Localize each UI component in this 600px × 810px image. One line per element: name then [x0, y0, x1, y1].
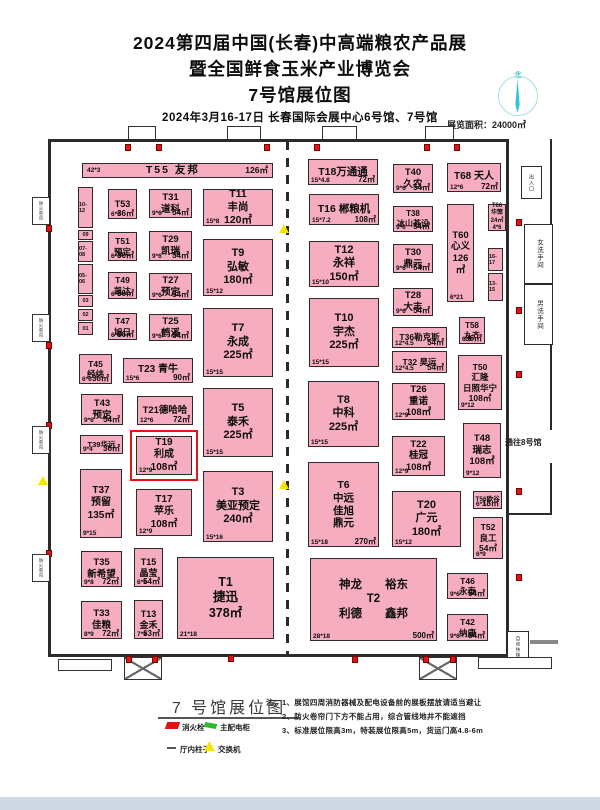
booth-T25: T25鹤溪9*654㎡ — [149, 314, 192, 341]
booth-T21: T21德哈哈12*672㎡ — [137, 396, 193, 425]
fire-hydrant-marker — [423, 656, 429, 663]
fire-shutter-door-label: 防火卷帘 — [38, 318, 44, 338]
booth-T49: T49凯达6*636㎡ — [108, 272, 137, 299]
booth-T13: T13金禾7*963㎡ — [134, 600, 163, 639]
fire-hydrant-marker — [516, 307, 522, 314]
booth-T68: T68 天人12*672㎡ — [447, 163, 501, 192]
booth-T7: T7永成225㎡15*15 — [203, 308, 273, 377]
escalator-label: 自动扶梯 — [515, 636, 521, 658]
fire-shutter-door-label: 防火卷帘 — [38, 558, 44, 578]
legend-switch-label: 交换机 — [218, 744, 241, 755]
left-strip-cell-03: 03 — [78, 295, 93, 307]
fire-hydrant-marker — [46, 225, 52, 232]
booth-T22: T22桂冠108㎡12*9 — [392, 436, 445, 476]
booth-T37: T37预留135㎡9*15 — [80, 469, 122, 538]
booth-T18: T18万通通15*4.872㎡ — [308, 159, 378, 185]
fire-hydrant-marker — [228, 655, 234, 662]
booth-T11: T11丰尚120㎡15*8 — [203, 189, 273, 226]
wall-right-outer-b — [550, 345, 552, 430]
hydrant-icon — [165, 722, 180, 729]
pillar-icon — [167, 747, 176, 749]
booth-T15: T15晶莹6*954㎡ — [134, 548, 163, 587]
restroom-women: 女洗手间 — [524, 224, 553, 284]
booth-T35: T35新希望9*872㎡ — [81, 551, 122, 587]
fire-hydrant-marker — [516, 219, 522, 226]
left-strip-cell-01: 01 — [78, 322, 93, 335]
fire-hydrant-marker — [152, 656, 158, 663]
left-strip-cell-02: 02 — [78, 309, 93, 321]
booth-T33: T33佳粮8*972㎡ — [81, 601, 122, 639]
booth-T46: T46永泰9*654㎡ — [447, 573, 488, 599]
booth-T38: T38冰山荟设9*654㎡ — [393, 206, 433, 232]
escalator-rail — [530, 640, 558, 644]
booth-T32: T32 昊运12*4.554㎡ — [392, 351, 447, 373]
booth-T9: T9弘敏180㎡15*12 — [203, 239, 273, 296]
dock-bottom-left — [58, 659, 112, 671]
booth-T36: T36勒克斯12*4.554㎡ — [392, 327, 447, 348]
note-2: 2、防火卷帘门下方不能占用，综合管线地井不能遮挡 — [282, 711, 466, 722]
booth-T52: T52良工54㎡6*9 — [473, 517, 503, 559]
booth-T55: 42*3T55 友邦126㎡ — [82, 163, 273, 178]
fire-hydrant-marker — [516, 574, 522, 581]
booth-T39: T39华远9*436㎡ — [80, 435, 123, 454]
restroom-men-label: 男洗手间 — [534, 300, 544, 330]
exhibition-floorplan-page: 2024第四届中国(长春)中高端粮农产品展 暨全国鲜食玉米产业博览会 7号馆展位… — [0, 0, 600, 810]
fire-hydrant-marker — [264, 144, 270, 151]
entrance-door: 出入口 — [521, 166, 542, 199]
fire-shutter-door: 防火卷帘 — [32, 554, 50, 582]
booth-T66: T66华策24㎡4*6 — [488, 204, 506, 231]
booth-T12: T12永祥150㎡15*10 — [309, 241, 379, 287]
fire-hydrant-marker — [126, 656, 132, 663]
booth-T8: T8中科225㎡15*15 — [308, 381, 379, 447]
fire-hydrant-marker — [516, 488, 522, 495]
booth-T6: T6中远佳旭鼎元15*18270㎡ — [308, 462, 379, 547]
wall-right-cross — [508, 513, 552, 515]
fire-shutter-door: 防火卷帘 — [32, 426, 50, 454]
wall-top — [48, 139, 508, 142]
notes-label: 注： — [266, 697, 281, 708]
fire-shutter-door-label: 防火卷帘 — [38, 201, 44, 221]
restroom-women-label: 女洗手间 — [534, 239, 544, 269]
booth-T31: T31道科9*654㎡ — [149, 189, 192, 218]
booth-T56: T56欧谷6*318㎡ — [473, 491, 502, 509]
booth-T5: T5泰禾225㎡15*15 — [203, 388, 273, 457]
fire-hydrant-marker — [156, 144, 162, 151]
switch-marker — [38, 476, 48, 485]
page-bottom-edge — [0, 797, 600, 810]
fire-shutter-door: 防火卷帘 — [32, 314, 50, 342]
note-1: 1、展馆四周消防器械及配电设备前的展板摆放请适当避让 — [282, 697, 481, 708]
right-strip-cell-13-15: 13-15 — [488, 273, 503, 301]
fire-hydrant-marker — [450, 656, 456, 663]
booth-T30: T30鼎元9*654㎡ — [393, 244, 433, 273]
fire-hydrant-marker — [314, 144, 320, 151]
booth-T1: T1捷迅378㎡21*18 — [177, 557, 274, 639]
booth-T48: T48瑞志108㎡9*12 — [463, 423, 501, 478]
hall-top-door — [128, 126, 156, 139]
fire-hydrant-marker — [454, 144, 460, 151]
booth-T3: T3美亚预定240㎡15*16 — [203, 471, 273, 542]
fire-hydrant-marker — [46, 342, 52, 349]
booth-T40: T40久农9*654㎡ — [393, 164, 433, 193]
note-3: 3、标准展位限高3m，特装展位限高5m，货运门高4.8-6m — [282, 725, 483, 736]
entrance-door-label: 出入口 — [528, 174, 535, 192]
booth-T17: T17苹乐108㎡12*9 — [136, 489, 192, 536]
booth-T60: T60心义126㎡6*21 — [447, 204, 474, 302]
booth-T58: T58九齐6*636㎡ — [459, 317, 485, 344]
booth-T53: T536*636㎡ — [108, 189, 137, 219]
booth-T23: T23 青牛15*690㎡ — [123, 358, 193, 383]
fire-shutter-door: 防火卷帘 — [32, 197, 50, 225]
fire-shutter-door-label: 防火卷帘 — [38, 430, 44, 450]
booth-T50: T50汇隆日照华宁108㎡9*12 — [458, 355, 502, 410]
wall-right-inner — [506, 139, 509, 657]
fire-hydrant-marker — [516, 371, 522, 378]
booth-T45: T45经纬6*636㎡ — [79, 354, 112, 384]
wall-right-outer-c — [550, 463, 552, 513]
dock-bottom-right — [478, 657, 552, 669]
left-strip-cell-07-08: 07-08 — [78, 241, 93, 262]
booth-T16: T16 郴粮机15*7.2108㎡ — [309, 194, 379, 225]
booth-T19: T19利成108㎡12*9 — [136, 436, 192, 475]
fire-hydrant-marker — [125, 144, 131, 151]
footer-title-underline — [158, 717, 300, 719]
booth-T27: T27预定9*654㎡ — [149, 273, 192, 300]
right-strip-cell-16-17: 16-17 — [488, 248, 503, 271]
booth-T42: T42纳康9*654㎡ — [447, 614, 488, 641]
left-strip-cell-05-06: 05-06 — [78, 264, 93, 294]
left-strip-cell-10-12: 10-12 — [78, 187, 93, 228]
wall-right-outer-a — [550, 139, 552, 224]
restroom-men: 男洗手间 — [524, 284, 553, 345]
hall-top-door — [322, 126, 357, 139]
fire-hydrant-marker — [424, 144, 430, 151]
hall-top-door — [227, 126, 261, 139]
hall-divider-pillar-line — [286, 141, 289, 654]
booth-T2: 神龙 裕东T2利德 鑫邦28*18500㎡ — [310, 558, 437, 641]
floor-plan: 女洗手间 男洗手间 出入口 通往8号馆 自动扶梯 42*3T55 友邦126㎡T… — [0, 0, 600, 810]
fire-hydrant-marker — [352, 656, 358, 663]
booth-T43: T43预定9*654㎡ — [81, 394, 123, 425]
booth-T28: T28大丰9*654㎡ — [393, 288, 433, 316]
booth-T10: T10宇杰225㎡15*15 — [309, 298, 379, 367]
booth-T20: T20广元180㎡15*12 — [392, 491, 461, 547]
booth-T47: T47旭日6*636㎡ — [108, 313, 137, 340]
legend-power-label: 主配电柜 — [220, 722, 250, 733]
booth-T51: T51预定6*636㎡ — [108, 232, 137, 261]
booth-T29: T29凯瑞9*654㎡ — [149, 231, 192, 261]
booth-T26: T26重诺108㎡12*9 — [392, 383, 445, 420]
legend-hydrant-label: 消火栓 — [182, 722, 205, 733]
left-strip-cell-09: 09 — [78, 230, 93, 240]
hall-top-door — [425, 126, 454, 139]
to-hall8-label: 通往8号馆 — [505, 437, 557, 448]
